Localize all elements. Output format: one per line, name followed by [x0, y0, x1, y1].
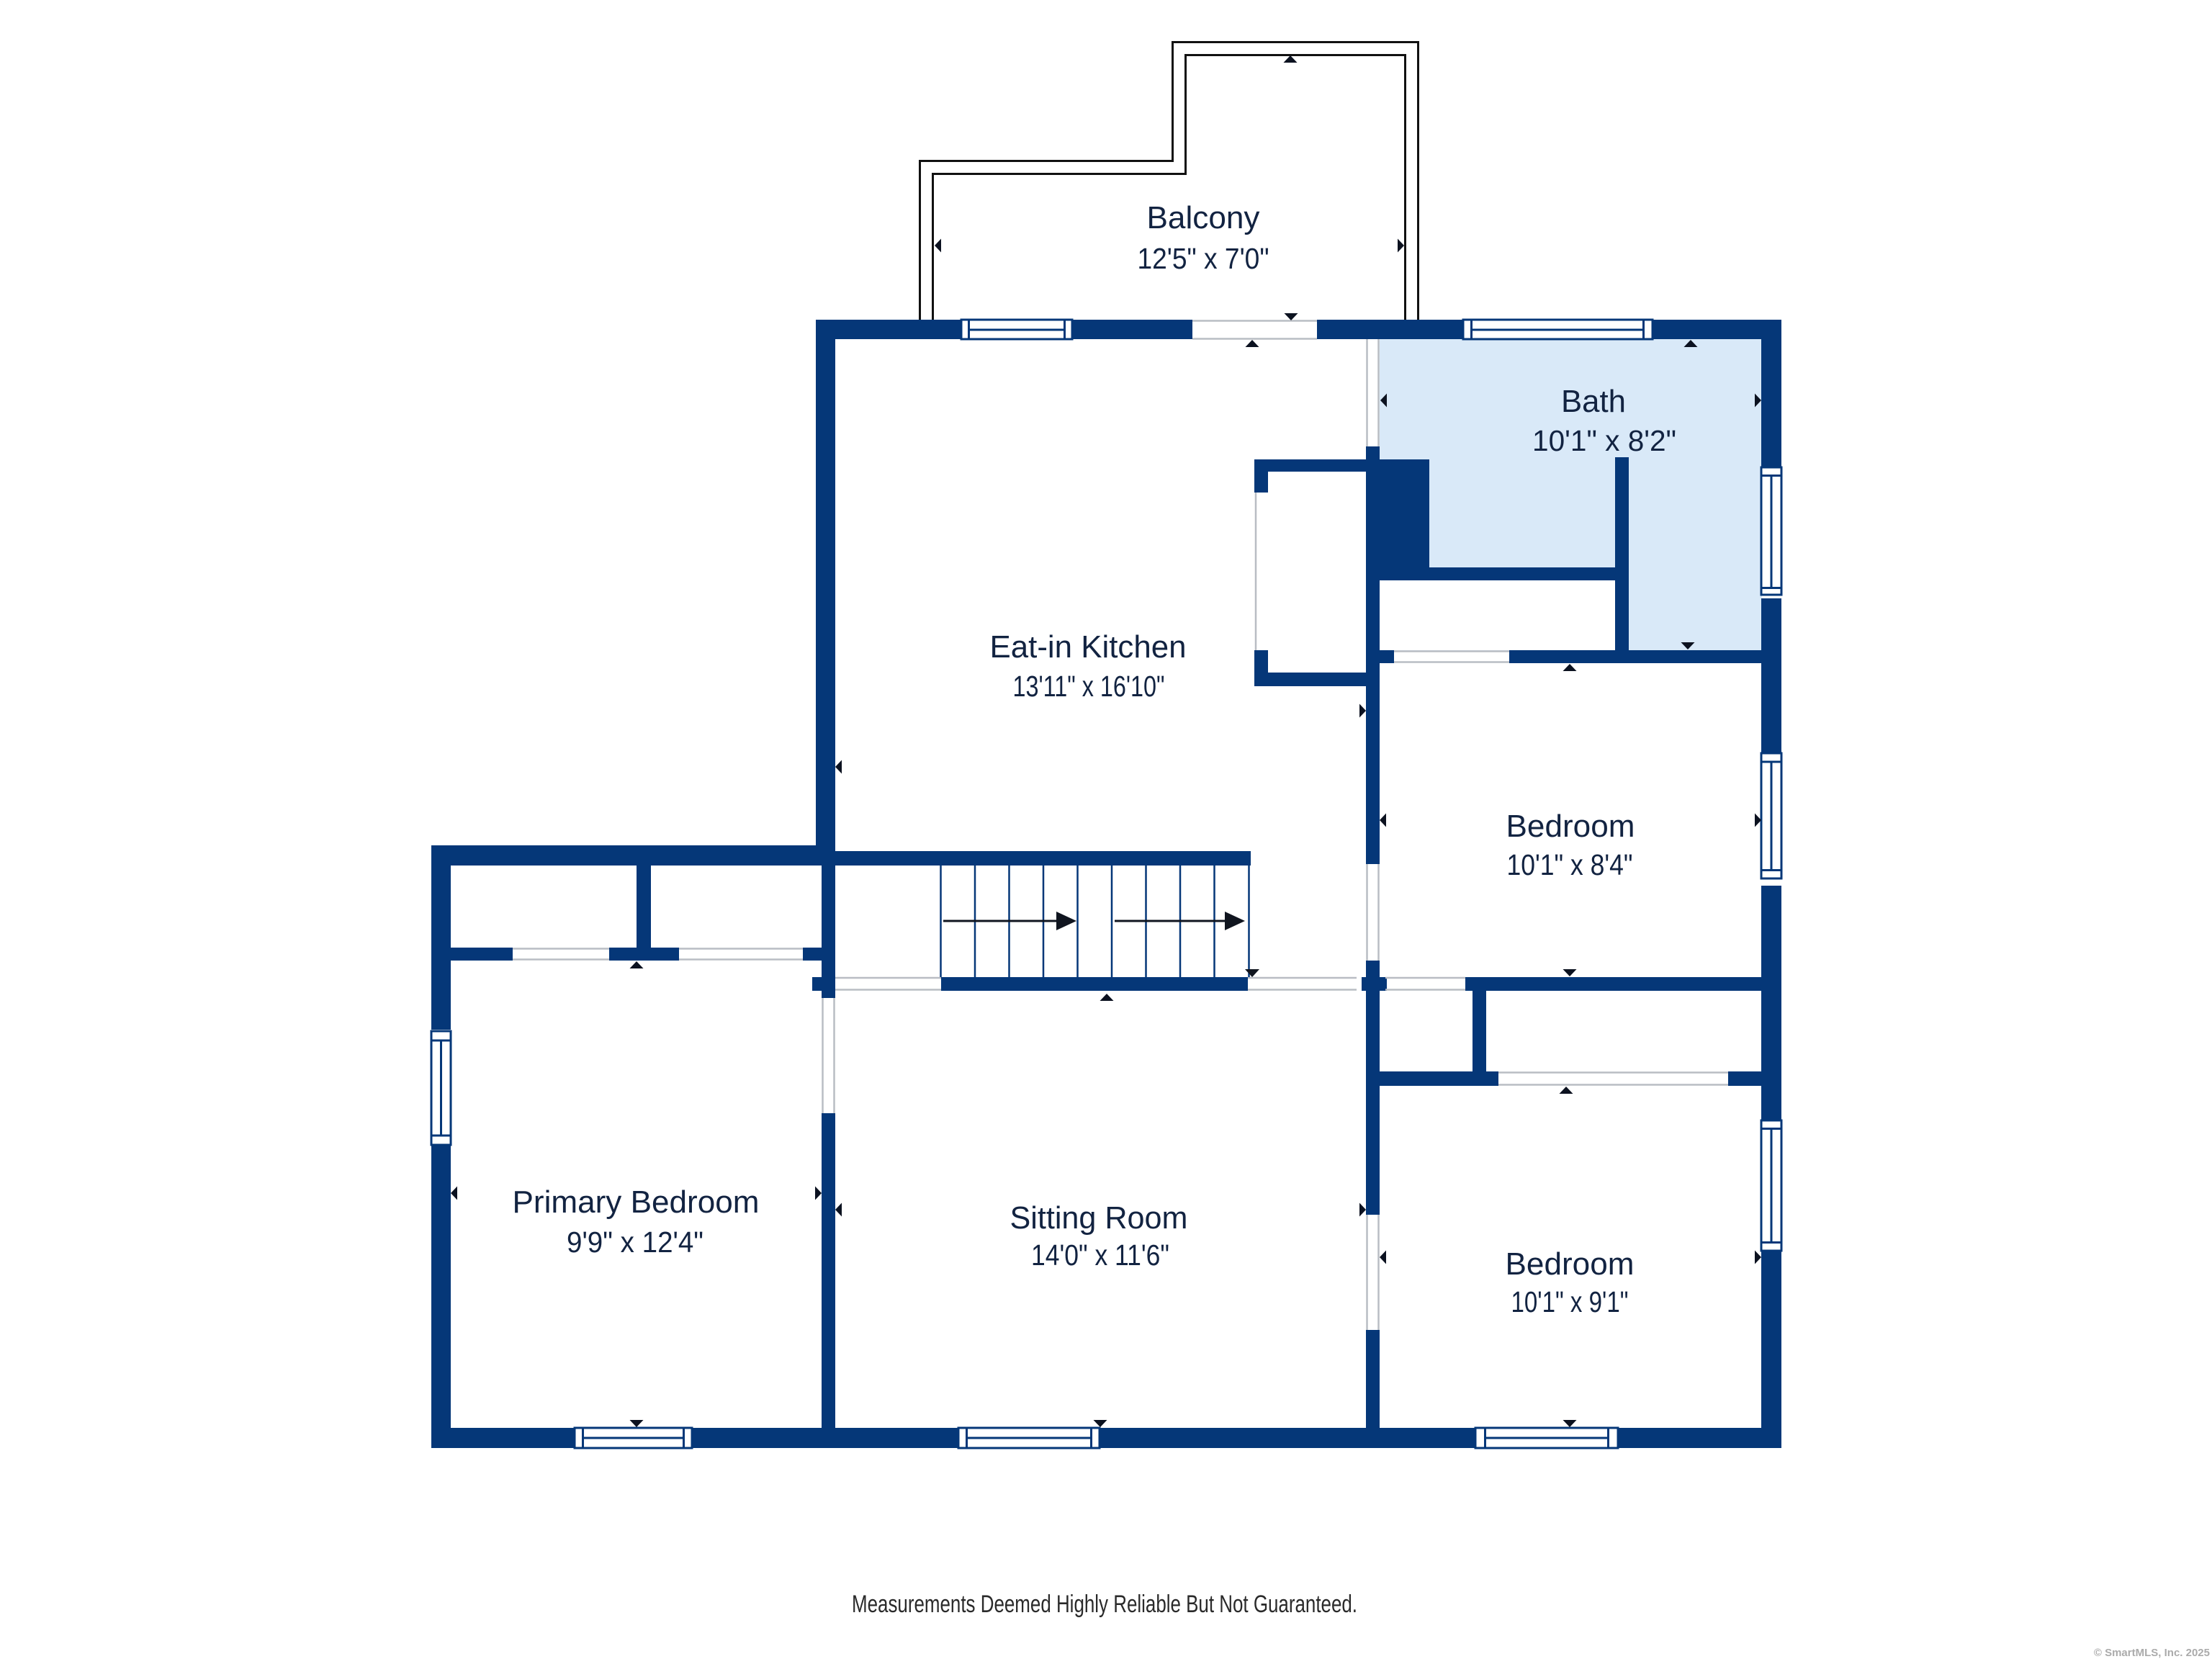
svg-text:10'1" x 8'2": 10'1" x 8'2"	[1532, 424, 1676, 457]
svg-text:Primary Bedroom: Primary Bedroom	[513, 1184, 760, 1220]
svg-text:Measurements Deemed Highly Rel: Measurements Deemed Highly Reliable But …	[852, 1591, 1357, 1618]
svg-text:Bedroom: Bedroom	[1506, 1246, 1635, 1282]
svg-text:Eat-in Kitchen: Eat-in Kitchen	[990, 629, 1187, 665]
svg-text:13'11" x 16'10": 13'11" x 16'10"	[1013, 670, 1165, 703]
svg-text:12'5" x 7'0": 12'5" x 7'0"	[1138, 242, 1269, 275]
svg-text:10'1" x 9'1": 10'1" x 9'1"	[1511, 1285, 1629, 1318]
svg-text:9'9" x 12'4": 9'9" x 12'4"	[567, 1226, 703, 1259]
svg-text:10'1" x 8'4": 10'1" x 8'4"	[1507, 848, 1633, 881]
svg-text:Bath: Bath	[1561, 384, 1626, 419]
svg-text:14'0" x 11'6": 14'0" x 11'6"	[1031, 1238, 1169, 1272]
svg-text:Bedroom: Bedroom	[1506, 809, 1635, 844]
svg-text:Sitting Room: Sitting Room	[1010, 1200, 1188, 1236]
svg-text:Balcony: Balcony	[1147, 200, 1260, 235]
svg-text:© SmartMLS, Inc. 2025: © SmartMLS, Inc. 2025	[2094, 1647, 2210, 1659]
